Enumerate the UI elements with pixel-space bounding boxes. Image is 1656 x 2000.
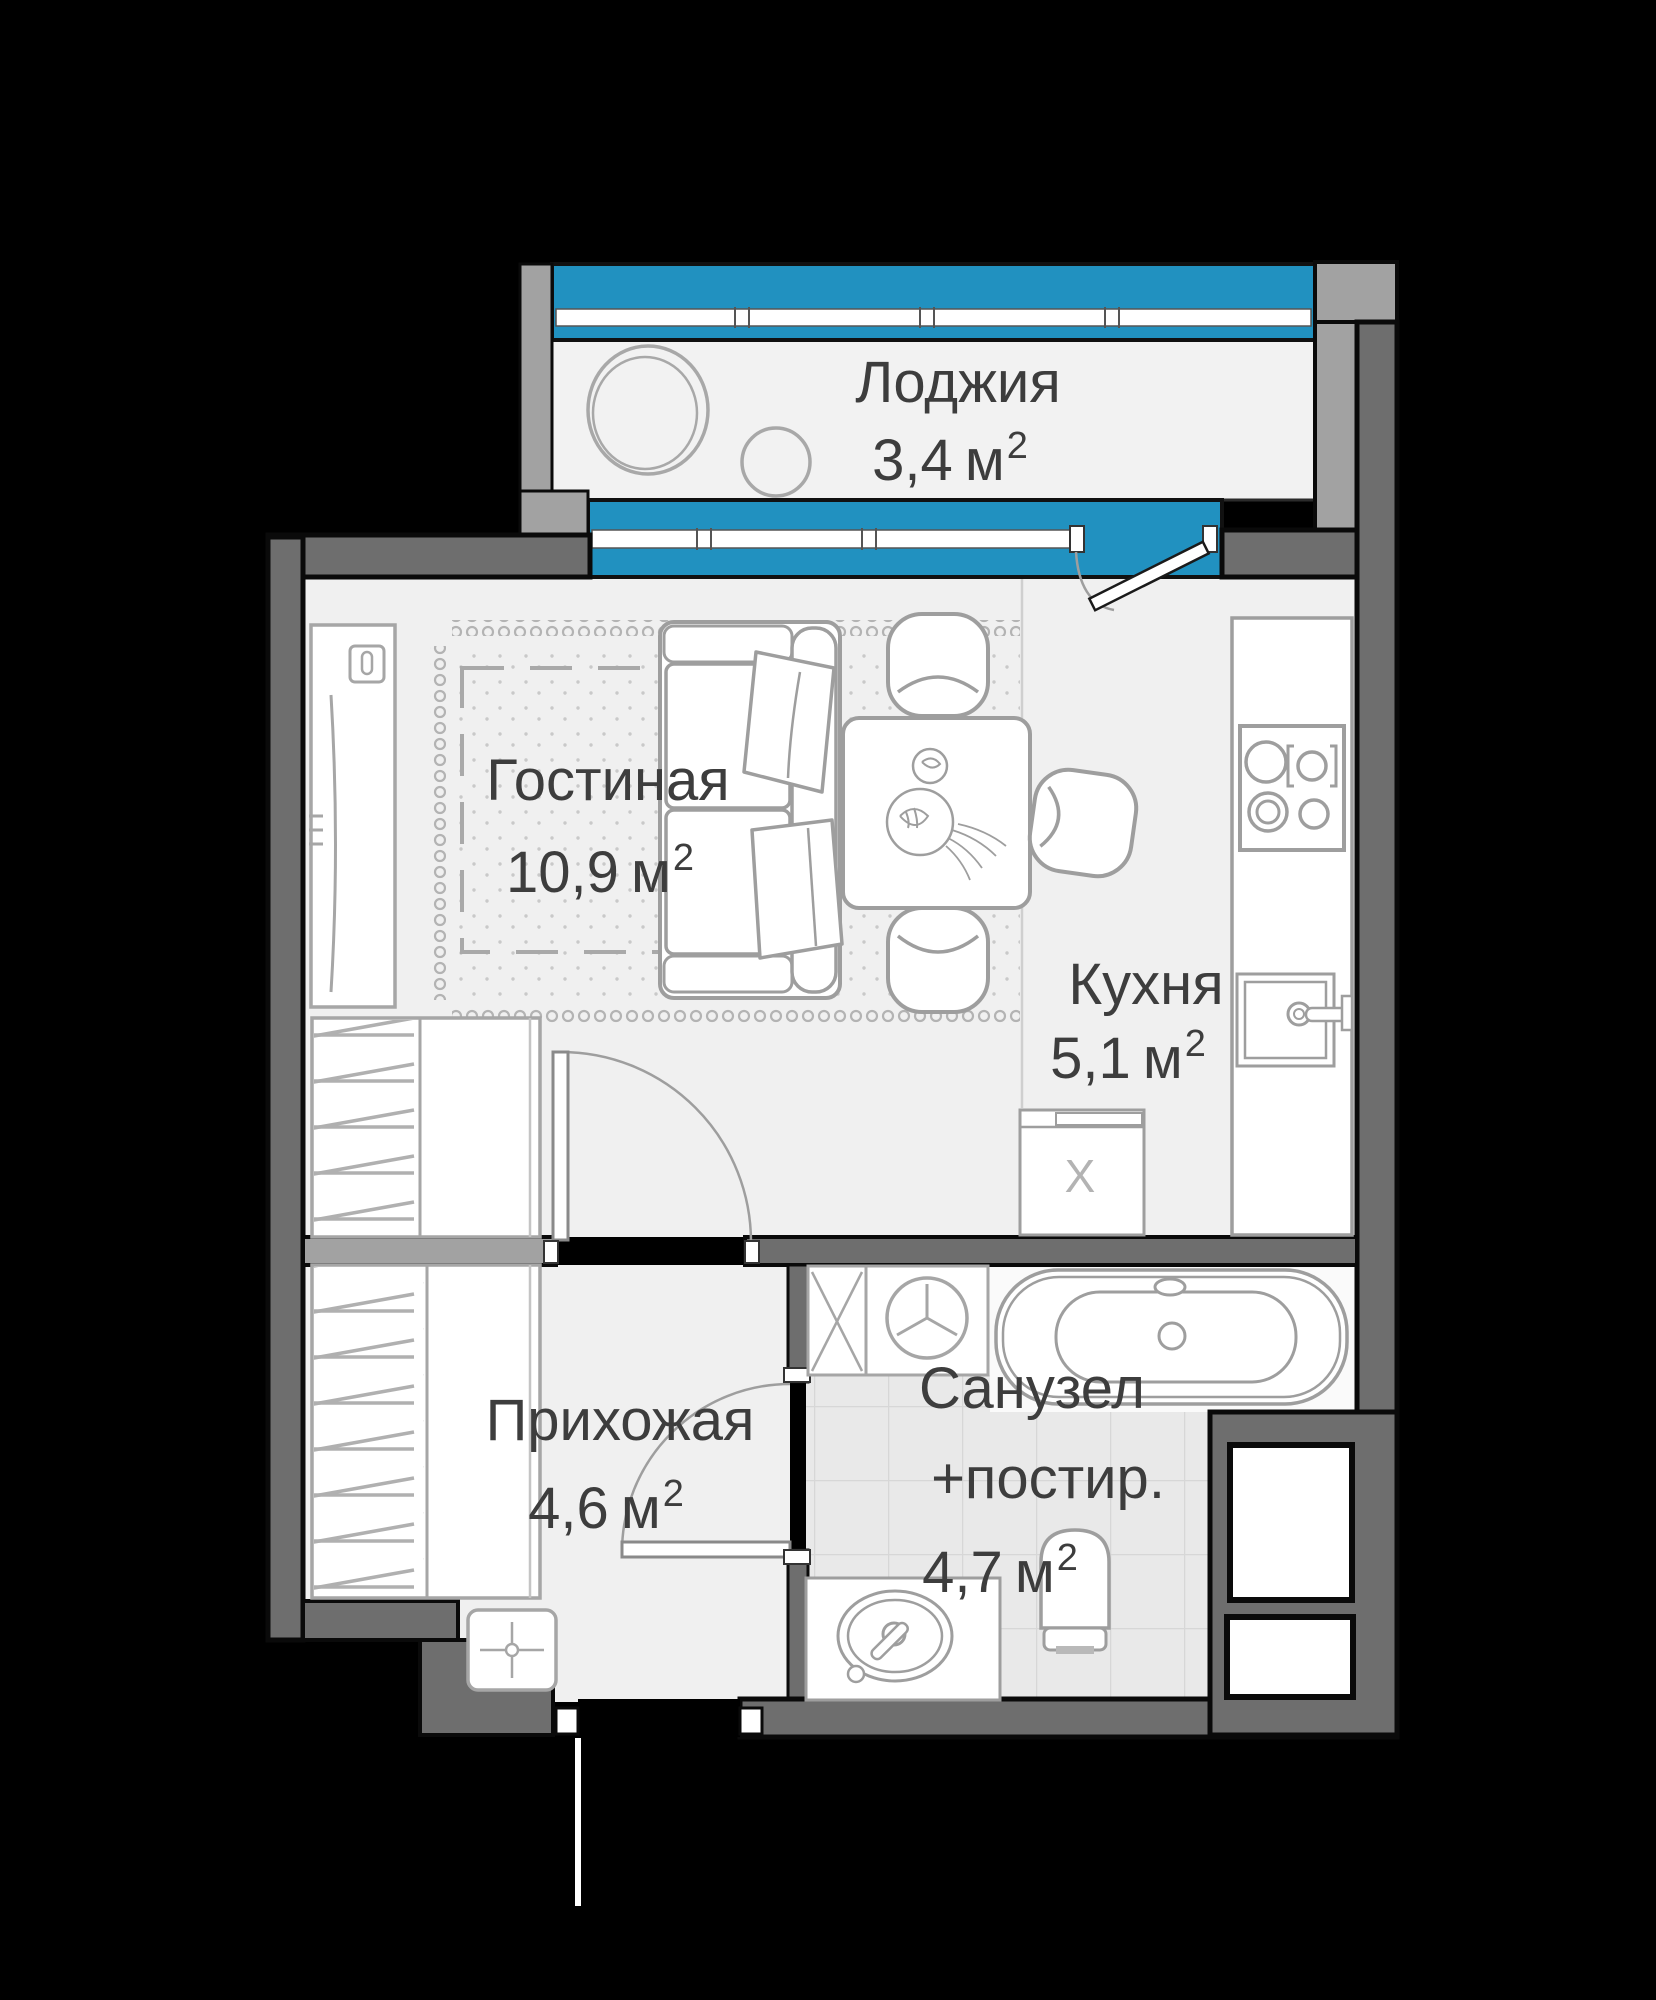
sink-icon	[1237, 974, 1352, 1066]
room-area-hallway: 4,6м2	[528, 1473, 684, 1541]
entrance-door-leaf	[574, 1737, 582, 1907]
loggia-wall-right	[1315, 322, 1357, 533]
dining-table	[843, 718, 1030, 908]
wall-bathroom-top	[745, 1237, 1357, 1265]
tub-drain	[1159, 1323, 1185, 1349]
room-label-living: Гостиная	[486, 748, 729, 813]
room-label-bathroom: Санузел	[919, 1356, 1145, 1421]
plate-icon	[913, 749, 947, 783]
wall-left-outer	[268, 537, 303, 1640]
wardrobe-living	[312, 1018, 540, 1237]
floorplan-canvas: Лоджия 3,4м2 Гостиная 10,9м2 Кухня 5,1м2…	[0, 0, 1656, 2000]
room-label-bathroom-extra: +постир.	[931, 1446, 1165, 1511]
wall-bathroom-left-upper	[788, 1265, 808, 1382]
kitchen-counter	[1232, 618, 1352, 1235]
shaft-box-upper	[1230, 1445, 1352, 1600]
room-area-loggia: 3,4м2	[872, 425, 1028, 493]
wall-top-left	[268, 535, 590, 577]
room-area-living: 10,9м2	[506, 837, 694, 905]
loggia-window-top	[552, 264, 1315, 340]
plate-icon	[887, 789, 953, 855]
room-area-kitchen: 5,1м2	[1050, 1023, 1206, 1091]
tub-faucet	[1155, 1279, 1185, 1295]
sofa-pillow	[752, 820, 842, 958]
chair-right	[1025, 765, 1140, 880]
room-label-kitchen: Кухня	[1068, 952, 1223, 1017]
chair-bottom	[888, 908, 988, 1012]
stove-icon	[1240, 726, 1344, 850]
floorplan-svg: Лоджия 3,4м2 Гостиная 10,9м2 Кухня 5,1м2…	[0, 0, 1656, 2000]
appliance-x-mark: X	[1065, 1150, 1096, 1202]
wall-step-left	[303, 1601, 458, 1640]
chair-top	[888, 614, 988, 716]
tv-cabinet	[309, 625, 395, 1007]
room-label-loggia: Лоджия	[855, 350, 1061, 415]
pouf	[468, 1610, 556, 1690]
laundry-box	[808, 1266, 866, 1375]
loggia-wall-right-cap	[1315, 262, 1397, 322]
entrance-opening	[578, 1699, 740, 1737]
shaft-box-lower	[1227, 1617, 1353, 1697]
room-label-hallway: Прихожая	[486, 1388, 755, 1453]
carpet-fringe-left	[430, 646, 446, 1000]
room-area-bathroom: 4,7м2	[922, 1537, 1078, 1605]
wall-partition-hall	[303, 1237, 556, 1265]
